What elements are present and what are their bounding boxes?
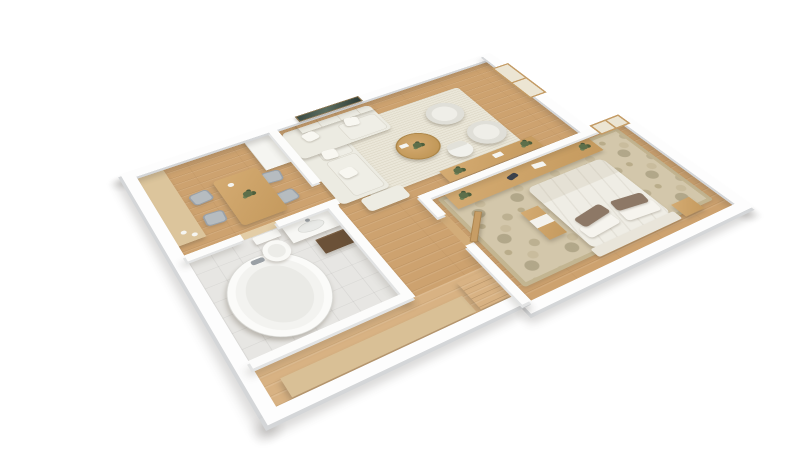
floor-plan-scene (0, 0, 800, 450)
window-mullion (605, 120, 616, 128)
window-mullion (512, 78, 526, 84)
armchair-cushion (427, 104, 463, 124)
armchair-cushion (468, 121, 505, 142)
floor-plan (120, 42, 762, 448)
toilet-lid (265, 242, 289, 260)
